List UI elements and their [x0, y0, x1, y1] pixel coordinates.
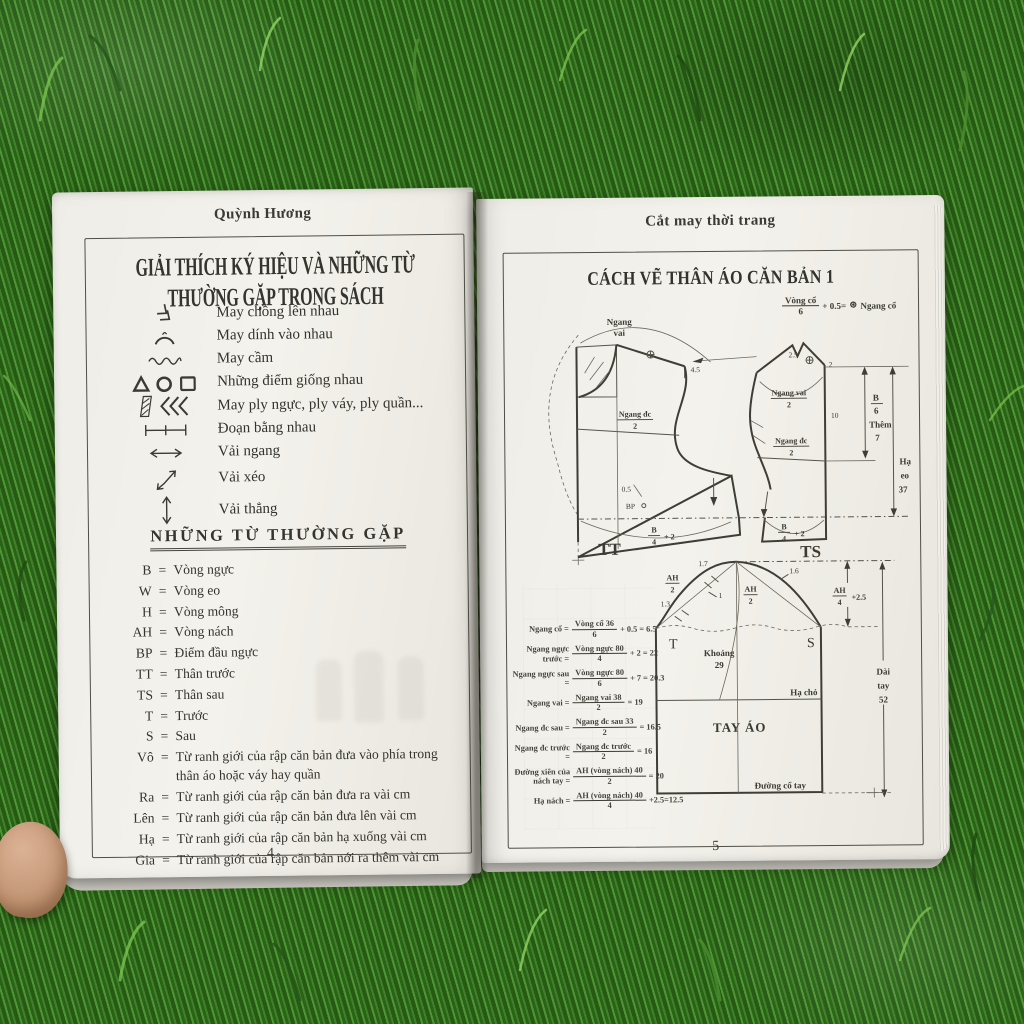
term-meaning: Trước: [175, 702, 461, 725]
sleeve-length-label: Dài: [876, 666, 890, 676]
ts-corner-value: 2: [829, 360, 833, 369]
svg-text:37: 37: [899, 484, 909, 494]
formula-row: Ngang đc trước =Ngang đc trước2= 16: [510, 741, 688, 763]
svg-text:2: 2: [749, 597, 753, 606]
term-meaning: Vòng nách: [174, 619, 460, 642]
formula-row: Đường xiên của nách tay =AH (vòng nách) …: [510, 766, 688, 788]
wrist-line-label: Đường cổ tay: [755, 780, 807, 790]
right-page-title: CÁCH VẼ THÂN ÁO CĂN BẢN 1: [504, 266, 918, 291]
equals-sign: =: [152, 623, 174, 643]
svg-text:2: 2: [789, 448, 793, 457]
term-abbr: TS: [113, 685, 153, 705]
formula-row: Ngang ngực sau =Vòng ngực 806+ 7 = 20.3: [509, 667, 687, 689]
measurement-formulas: Ngang cổ =Vòng cổ 366+ 0.5 = 6.5 Ngang n…: [509, 618, 689, 816]
term-abbr: H: [112, 602, 152, 622]
svg-text:tay: tay: [877, 680, 890, 690]
term-abbr: Lên: [114, 808, 154, 828]
equals-sign: =: [151, 560, 173, 580]
front-piece-label: TT: [598, 540, 622, 559]
term-meaning: Từ ranh giới của rập căn bản đưa vào phí…: [176, 744, 462, 786]
section-heading: NHỮNG TỪ THƯỜNG GẶP: [150, 523, 406, 549]
term-abbr: BP: [112, 644, 152, 664]
term-meaning: Từ ranh giới của rập căn bản đưa lên vài…: [176, 805, 462, 828]
horizontal-arrow-icon: [114, 444, 218, 461]
right-page-number: 5: [482, 837, 950, 857]
term-row: AH=Vòng nách: [112, 619, 460, 643]
symbol-label: May chồng lên nhau: [216, 303, 339, 322]
term-abbr: W: [112, 581, 152, 601]
equals-sign: =: [153, 727, 175, 747]
term-abbr: Hạ: [115, 829, 155, 849]
fraction: Vòng ngực 806: [572, 668, 627, 689]
right-page: Cắt may thời trang CÁCH VẼ THÂN ÁO CĂN B…: [476, 195, 950, 863]
svg-text:4: 4: [838, 598, 842, 607]
ha-eo-label: Hạ: [899, 456, 911, 466]
svg-text:52: 52: [879, 694, 889, 704]
match-point-symbol: ⊛: [849, 300, 857, 311]
svg-text:eo: eo: [900, 470, 909, 480]
term-abbr: AH: [112, 623, 152, 643]
equals-sign: =: [154, 787, 176, 807]
fraction: Ngang đc sau 332: [573, 717, 637, 738]
equals-sign: =: [153, 685, 175, 705]
equals-sign: =: [154, 808, 176, 828]
svg-text:6: 6: [874, 406, 879, 416]
ts-back-depth: 10: [831, 411, 839, 420]
fraction: Vòng cổ 366: [572, 619, 617, 639]
term-meaning: Điểm đầu ngực: [174, 640, 460, 663]
triangle-circle-square-icon: [113, 372, 217, 393]
formula-row: Ngang ngực trước =Vòng ngực 804+ 2 = 22: [509, 643, 687, 665]
symbol-label: May cầm: [217, 350, 273, 368]
term-row: S=Sau: [113, 723, 461, 747]
left-content-box: GIẢI THÍCH KÝ HIỆU VÀ NHỮNG TỪ THƯỜNG GẶ…: [84, 234, 472, 859]
ah4-fraction: AH: [834, 586, 847, 595]
ah2-left: AH: [666, 573, 679, 582]
term-row: Ra=Từ ranh giới của rập căn bản đưa ra v…: [114, 784, 462, 808]
term-abbr: Ra: [114, 788, 154, 808]
svg-text:4: 4: [782, 534, 786, 543]
vertical-arrow-icon: [115, 493, 219, 528]
gather-wave-icon: [113, 352, 217, 367]
cap-value-13: 1.3: [661, 599, 671, 608]
symbol-label: Những điểm giống nhau: [217, 372, 363, 391]
ts-quarter-bust: B: [781, 522, 787, 531]
fraction: Ngang vai 382: [572, 692, 624, 713]
grass-background: Quỳnh Hương GIẢI THÍCH KÝ HIỆU VÀ NHỮNG …: [0, 0, 1024, 1024]
equal-segments-icon: [114, 420, 218, 439]
svg-text:2: 2: [633, 422, 637, 431]
sleeve-back-label: S: [807, 636, 815, 651]
fraction: Vòng cổ 6: [782, 295, 819, 317]
equals-sign: =: [153, 664, 175, 684]
term-row: TS=Thân sau: [113, 681, 461, 705]
term-meaning: Sau: [175, 723, 461, 746]
formula-row: Ngang đc sau =Ngang đc sau 332= 16.5: [510, 716, 688, 738]
svg-text:+ 2: + 2: [664, 532, 675, 541]
cap-value-16: 1.6: [789, 566, 799, 575]
term-abbr: Vô: [114, 748, 154, 787]
b6-fraction: B: [873, 393, 879, 403]
symbol-label: Vải ngang: [218, 443, 280, 461]
symbol-label: Vải xéo: [218, 469, 265, 487]
symbol-label: Vải thẳng: [219, 500, 278, 518]
overlap-chevrons-icon: [112, 302, 216, 325]
fraction: AH (vòng nách) 404: [573, 791, 646, 812]
term-row: Lên=Từ ranh giới của rập căn bản đưa lên…: [114, 805, 462, 829]
svg-text:Thêm: Thêm: [869, 419, 892, 429]
term-row: B=Vòng ngực: [111, 557, 459, 581]
equals-sign: =: [152, 643, 174, 663]
cap-value-1: 1: [719, 591, 723, 600]
neck-formula-label: Ngang cổ: [860, 300, 896, 310]
symbol-label: May dính vào nhau: [216, 326, 332, 344]
term-meaning: Thân trước: [175, 661, 461, 684]
elbow-line-label: Hạ chỏ: [790, 687, 818, 697]
svg-text:vai: vai: [613, 328, 625, 338]
term-abbr: B: [111, 560, 151, 580]
term-row: W=Vòng eo: [112, 577, 460, 601]
shoulder-drop-value: 4.5: [691, 365, 701, 374]
formula-row: Ngang cổ =Vòng cổ 366+ 0.5 = 6.5: [509, 618, 687, 640]
left-page: Quỳnh Hương GIẢI THÍCH KÝ HIỆU VÀ NHỮNG …: [52, 187, 481, 878]
term-meaning: Vòng mông: [174, 598, 460, 621]
symbol-legend: May chồng lên nhau May dính vào nhau May…: [112, 299, 451, 528]
equals-sign: =: [152, 602, 174, 622]
right-running-head: Cắt may thời trang: [476, 211, 944, 232]
fraction: Vòng ngực 804: [572, 643, 627, 664]
symbol-row: Vải thẳng: [115, 490, 451, 528]
term-row: TT=Thân trước: [113, 661, 461, 685]
book-spine-shadow: [466, 192, 488, 878]
formula-row: Ngang vai =Ngang vai 382= 19: [509, 692, 687, 714]
term-row: Vô=Từ ranh giới của rập căn bản đưa vào …: [114, 744, 462, 787]
svg-text:7: 7: [875, 433, 880, 443]
cap-value-17: 1.7: [698, 559, 708, 568]
bodice-draft-diagram: Ngang vai 4.5: [516, 314, 920, 569]
pleat-hatch-icon: [113, 394, 217, 419]
equals-sign: =: [154, 747, 176, 786]
section-heading-wrap: NHỮNG TỪ THƯỜNG GẶP: [89, 523, 467, 551]
term-row: BP=Điểm đầu ngực: [112, 640, 460, 664]
equals-sign: =: [152, 581, 174, 601]
terms-list: B=Vòng ngực W=Vòng eo H=Vòng mông AH=Vòn…: [111, 557, 463, 872]
bicep-span-label: Khoảng: [704, 648, 735, 658]
formula-row: Hạ nách =AH (vòng nách) 404+2.5=12.5: [510, 790, 688, 812]
ts-shoulder-fraction: Ngang vai: [772, 388, 807, 397]
left-running-head: Quỳnh Hương: [52, 203, 473, 225]
term-meaning: Thân sau: [175, 681, 461, 704]
sleeve-piece-label: TAY ÁO: [713, 720, 767, 735]
ts-chest-fraction: Ngang đc: [775, 436, 808, 445]
svg-text:29: 29: [715, 660, 725, 670]
equals-sign: =: [153, 706, 175, 726]
ah2-right: AH: [744, 585, 757, 594]
tt-quarter-bust: B: [651, 525, 657, 534]
symbol-row: Vải xéo: [114, 461, 450, 494]
term-abbr: TT: [113, 664, 153, 684]
tt-chest-fraction: Ngang đc: [619, 410, 652, 419]
term-row: H=Vòng mông: [112, 598, 460, 622]
right-content-box: CÁCH VẼ THÂN ÁO CĂN BẢN 1 Vòng cổ 6 + 0.…: [503, 249, 924, 849]
bp-offset-value: 0.5: [622, 485, 632, 494]
term-meaning: Vòng eo: [174, 577, 460, 600]
term-meaning: Từ ranh giới của rập căn bản đưa ra vài …: [176, 784, 462, 807]
symbol-label: Đoạn bằng nhau: [218, 419, 317, 437]
symbol-label: May ply ngực, ply váy, ply quần...: [217, 395, 423, 415]
term-abbr: T: [113, 706, 153, 726]
fraction: Ngang đc trước2: [573, 742, 634, 763]
svg-text:2: 2: [787, 400, 791, 409]
svg-text:2: 2: [670, 585, 674, 594]
term-abbr: S: [113, 727, 153, 747]
ngang-vai-arc-label: Ngang: [607, 317, 633, 327]
equals-sign: =: [155, 829, 177, 849]
diagonal-arrow-icon: [114, 464, 218, 493]
svg-text:+2.5: +2.5: [852, 593, 867, 602]
svg-text:+ 2: + 2: [794, 529, 805, 538]
term-row: T=Trước: [113, 702, 461, 726]
fraction: AH (vòng nách) 402: [573, 766, 646, 787]
term-meaning: Vòng ngực: [173, 557, 459, 580]
ts-neck-value: 2.5: [788, 350, 798, 359]
bp-label: BP: [626, 502, 635, 511]
attach-arc-icon: [112, 327, 216, 346]
